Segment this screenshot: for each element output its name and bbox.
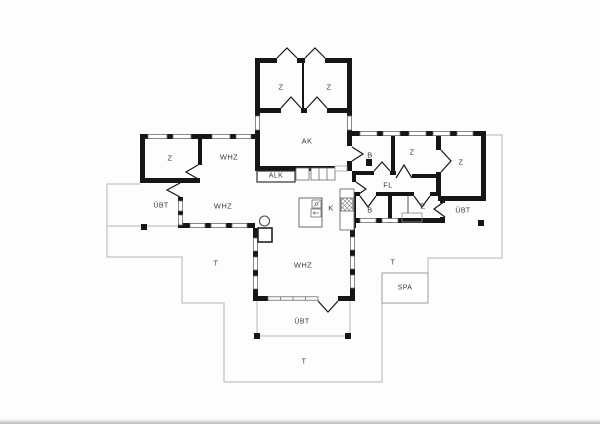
label-bedroom-top-right: Z xyxy=(327,83,332,92)
label-living-room-south: WHZ xyxy=(294,261,312,270)
label-bedroom-top-left: Z xyxy=(279,83,284,92)
terrace-posts xyxy=(141,220,484,339)
label-covered-terrace-west: ÜBT xyxy=(153,203,168,210)
label-terrace-west: T xyxy=(214,261,219,268)
label-bedroom-far-east: Z xyxy=(459,158,464,167)
label-spa: SPA xyxy=(398,285,413,292)
ak-passage xyxy=(335,166,347,171)
label-work-room: AK xyxy=(302,137,313,146)
floor-plan-drawing xyxy=(0,0,600,424)
label-covered-terrace-south: ÜBT xyxy=(294,319,309,326)
label-alcove-closet: ALK xyxy=(269,173,283,180)
wardrobe xyxy=(296,168,335,180)
label-living-room-middle: WHZ xyxy=(214,202,232,211)
floor-plan-page: Z Z AK ALK Z WHZ ÜBT WHZ K B Z Z FL B E … xyxy=(0,0,600,424)
label-hallway: FL xyxy=(383,181,393,190)
label-terrace-south: T xyxy=(302,359,307,366)
label-bath-south: B xyxy=(367,206,372,215)
fireplace-box xyxy=(258,228,272,242)
label-bath-north: B xyxy=(367,151,372,160)
label-covered-terrace-east: ÜBT xyxy=(455,208,470,215)
label-kitchen: K xyxy=(328,204,333,213)
kitchen-island xyxy=(299,198,322,227)
fireplace xyxy=(258,216,272,242)
label-entry: E xyxy=(420,202,425,211)
label-terrace-east: T xyxy=(391,260,396,267)
label-bedroom-west: Z xyxy=(168,154,173,163)
scan-page-edge xyxy=(0,419,600,424)
label-bedroom-mid-east: Z xyxy=(410,148,415,157)
label-living-room-north: WHZ xyxy=(220,153,238,162)
kitchen-counter xyxy=(340,189,354,230)
fireplace-flue xyxy=(260,216,270,226)
